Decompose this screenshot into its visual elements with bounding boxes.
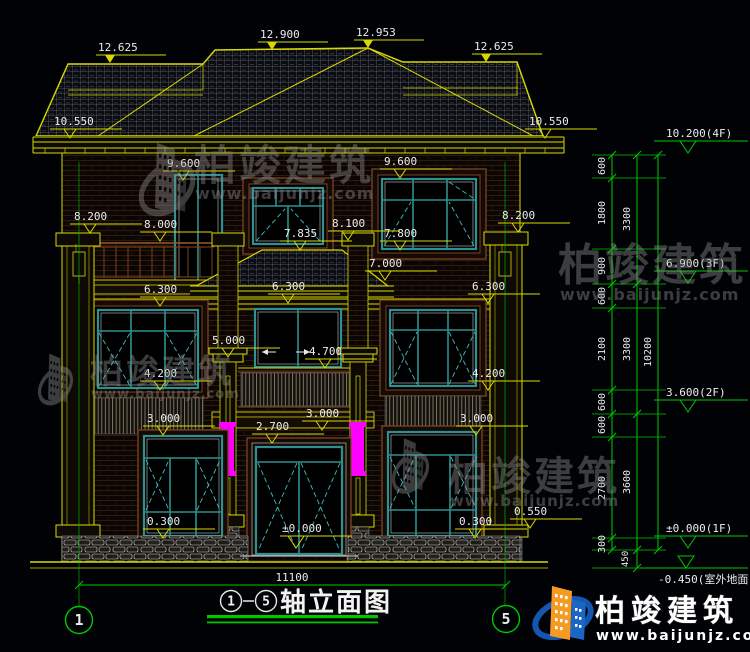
svg-text:3300: 3300 [622,207,633,231]
brand-name: 柏竣建筑 [595,594,739,629]
svg-text:5.000: 5.000 [212,334,245,347]
svg-text:9.600: 9.600 [384,155,417,168]
svg-text:8.100: 8.100 [332,217,365,230]
svg-text:6.300: 6.300 [144,283,177,296]
overall-dim-text: 11100 [275,571,308,584]
svg-text:10.550: 10.550 [54,115,94,128]
svg-text:0.300: 0.300 [459,515,492,528]
dimension-chain: 600 1800 900 600 2100 600 600 2700 300 3… [592,127,750,586]
watermark-right: 柏竣建筑 www.baijunjz.com [558,240,746,304]
svg-text:450: 450 [621,551,631,567]
svg-text:3.000: 3.000 [147,412,180,425]
downspout-highlight-right [351,427,364,471]
svg-text:7.800: 7.800 [384,227,417,240]
svg-text:7.000: 7.000 [369,257,402,270]
title-underline-thin [207,622,378,624]
svg-text:±0.000: ±0.000 [282,522,322,535]
brand-footer: 柏竣建筑 www.baijunjz.com [530,586,750,645]
svg-text:8.000: 8.000 [144,218,177,231]
window-3f-right [372,169,486,259]
svg-text:12.625: 12.625 [474,40,514,53]
brand-url: www.baijunjz.com [596,628,750,644]
cad-canvas: 11100 1 5 600 1800 900 600 2100 600 600 … [0,0,750,652]
drawing-title: 1 5 轴立面图 [207,587,392,623]
svg-text:6.300: 6.300 [472,280,505,293]
svg-text:3.000: 3.000 [460,412,493,425]
svg-text:1: 1 [74,611,83,629]
svg-text:3.000: 3.000 [306,407,339,420]
svg-text:7.835: 7.835 [284,227,317,240]
svg-text:5: 5 [501,610,510,628]
svg-text:www.baijunjz.com: www.baijunjz.com [91,387,240,402]
svg-text:12.625: 12.625 [98,41,138,54]
elevation-drawing: 11100 1 5 600 1800 900 600 2100 600 600 … [0,0,750,652]
svg-text:5: 5 [262,595,270,610]
svg-text:1: 1 [227,595,235,610]
svg-text:300: 300 [597,535,608,553]
svg-text:www.baijunjz.com: www.baijunjz.com [450,492,619,510]
svg-text:600: 600 [597,393,608,411]
svg-text:www.baijunjz.com: www.baijunjz.com [560,285,739,304]
svg-text:柏竣建筑: 柏竣建筑 [90,352,234,391]
svg-text:600: 600 [597,416,608,434]
brand-logo-icon [530,586,597,645]
svg-text:4.200: 4.200 [472,367,505,380]
title-underline-thick [207,615,378,618]
title-text: 轴立面图 [280,587,392,618]
svg-text:2.700: 2.700 [256,420,289,433]
svg-text:2100: 2100 [597,337,608,361]
svg-text:0.300: 0.300 [147,515,180,528]
level-flag-4f: 10.200(4F) [654,127,748,153]
svg-text:柏竣建筑: 柏竣建筑 [194,141,374,190]
svg-text:600: 600 [597,157,608,175]
svg-text:3.600(2F): 3.600(2F) [666,386,726,399]
svg-text:10.550: 10.550 [529,115,569,128]
svg-text:-0.450(室外地面): -0.450(室外地面) [658,572,750,586]
svg-text:3600: 3600 [622,470,633,494]
svg-text:3300: 3300 [622,337,633,361]
svg-text:www.baijunjz.com: www.baijunjz.com [195,184,374,203]
level-flag-2f: 3.600(2F) [654,386,748,412]
level-flag-1f: ±0.000(1F) [654,522,748,548]
svg-text:12.953: 12.953 [356,26,396,39]
main-roof [36,48,543,138]
level-flag-ground: -0.450(室外地面) [640,556,750,586]
svg-text:6.300: 6.300 [272,280,305,293]
door-1f-entrance [247,438,351,556]
svg-text:±0.000(1F): ±0.000(1F) [666,522,732,535]
svg-text:柏竣建筑: 柏竣建筑 [558,240,746,291]
svg-text:12.900: 12.900 [260,28,300,41]
svg-text:1800: 1800 [597,201,608,225]
svg-text:8.200: 8.200 [502,209,535,222]
svg-text:8.200: 8.200 [74,210,107,223]
svg-text:10.200(4F): 10.200(4F) [666,127,732,140]
svg-text:10200: 10200 [643,337,654,367]
svg-text:4.700: 4.700 [309,345,342,358]
door-2f-balcony [255,309,341,367]
